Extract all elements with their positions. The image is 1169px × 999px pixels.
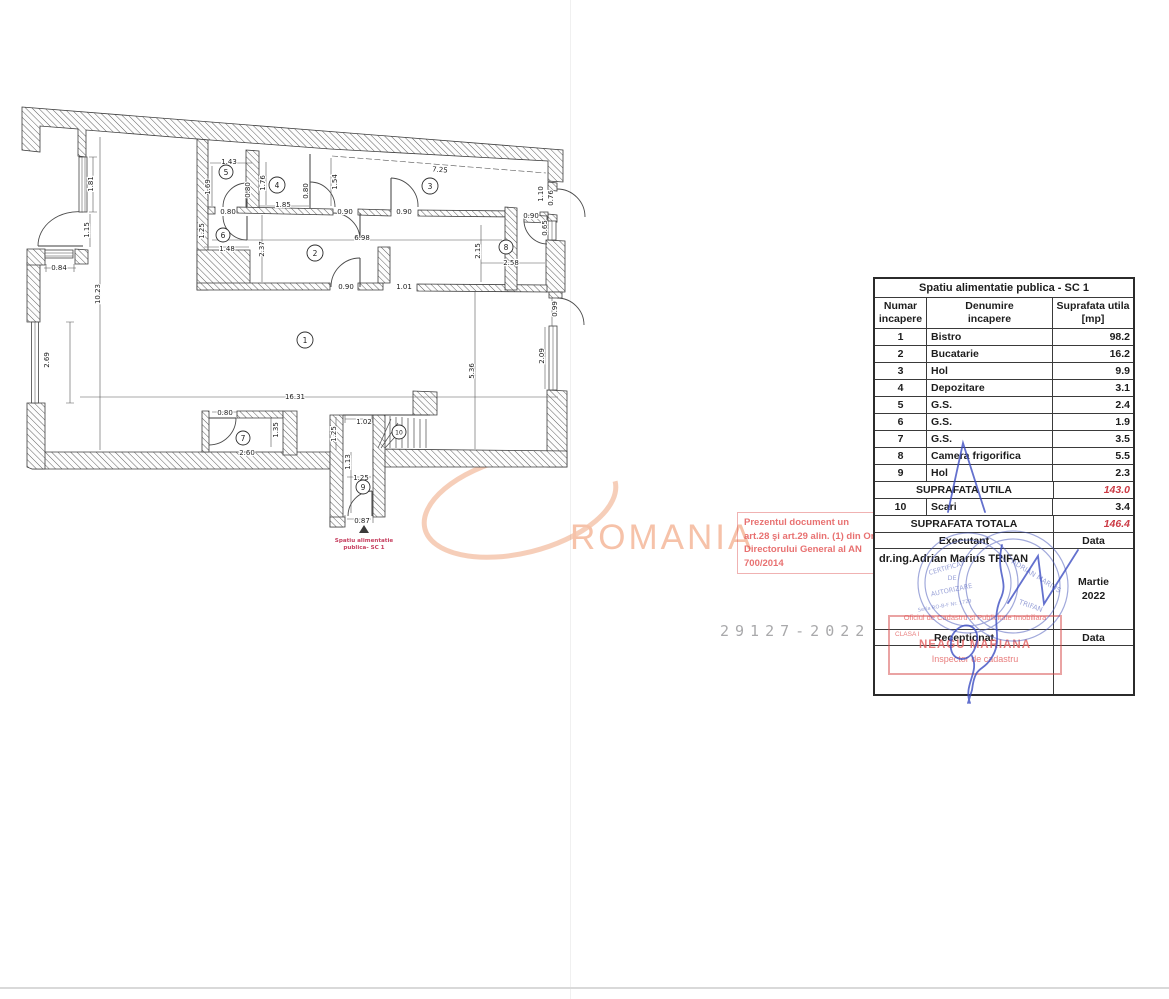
cell-nr: 3 xyxy=(875,363,927,379)
dim-label: 0.76 xyxy=(547,190,555,206)
room-number: 3 xyxy=(428,182,433,191)
header-text: Denumire xyxy=(965,300,1013,313)
table-row: 6G.S.1.9 xyxy=(875,414,1133,431)
dim-label: 0.90 xyxy=(523,212,539,220)
table-header-row: Numar incapere Denumire incapere Suprafa… xyxy=(875,298,1133,329)
room-number: 10 xyxy=(395,430,403,437)
dim-label: 1.35 xyxy=(272,422,280,438)
document-number: 29127-2022 xyxy=(720,622,870,640)
dim-label: 0.90 xyxy=(396,208,412,216)
dim-label: 2.60 xyxy=(239,449,255,457)
table-title: Spatiu alimentatie publica - SC 1 xyxy=(875,279,1133,298)
table-row: 5G.S.2.4 xyxy=(875,397,1133,414)
dim-label: 1.15 xyxy=(83,222,91,238)
dim-label: 1.85 xyxy=(275,201,291,209)
cell-nr: 4 xyxy=(875,380,927,396)
dim-label: 1.69 xyxy=(204,179,212,195)
dim-label: 0.99 xyxy=(551,301,559,317)
cell-name: Hol xyxy=(927,363,1053,379)
table-row: 2Bucatarie16.2 xyxy=(875,346,1133,363)
header-text: Numar xyxy=(884,300,917,313)
cell-name: Depozitare xyxy=(927,380,1053,396)
dim-label: 1.54 xyxy=(331,174,339,190)
dim-label: 7.25 xyxy=(432,165,448,174)
header-denumire: Denumire incapere xyxy=(927,298,1053,328)
dim-label: 2.09 xyxy=(538,348,546,364)
cell-name: G.S. xyxy=(927,397,1053,413)
dim-label: 1.81 xyxy=(87,176,95,192)
dim-label: 1.43 xyxy=(221,158,237,166)
dim-label: 0.80 xyxy=(220,208,236,216)
cell-area: 2.4 xyxy=(1053,397,1133,413)
table-row: 1Bistro98.2 xyxy=(875,329,1133,346)
room-number: 1 xyxy=(303,336,308,345)
dim-label: 1.13 xyxy=(344,454,352,470)
dim-label: 0.80 xyxy=(217,409,233,417)
cell-area: 3.1 xyxy=(1053,380,1133,396)
dim-label: 1.25 xyxy=(330,426,338,442)
room-number: 4 xyxy=(275,181,280,190)
dim-label: 0.84 xyxy=(51,264,67,272)
scanned-floorplan-page: ROMANIA xyxy=(0,0,1169,999)
cell-name: Bistro xyxy=(927,329,1053,345)
dim-label: 0.90 xyxy=(338,283,354,291)
dim-label: 1.10 xyxy=(537,186,545,202)
blue-stamp-and-signature: CERTIFICAT DE AUTORIZARE Seria RO-B-F Nr… xyxy=(855,430,1125,715)
room-number: 8 xyxy=(504,243,509,252)
cell-name: Bucatarie xyxy=(927,346,1053,362)
stamp-text: TRIFAN xyxy=(1017,598,1044,614)
dim-label: 1.02 xyxy=(356,418,372,426)
dim-label: 1.01 xyxy=(396,283,412,291)
space-label: Spatiu alimentatie publica- SC 1 xyxy=(335,525,394,551)
room-number: 7 xyxy=(241,434,246,443)
cell-nr: 1 xyxy=(875,329,927,345)
header-text: [mp] xyxy=(1082,313,1105,326)
dim-label: 6.98 xyxy=(354,234,370,242)
header-text: Suprafata utila xyxy=(1057,300,1130,313)
room-number: 9 xyxy=(361,483,366,492)
header-text: incapere xyxy=(879,313,922,326)
dim-label: 2.15 xyxy=(474,243,482,259)
window-symbols xyxy=(32,157,558,403)
header-numar: Numar incapere xyxy=(875,298,927,328)
dim-label: 0.87 xyxy=(354,517,370,525)
header-suprafata: Suprafata utila [mp] xyxy=(1053,298,1133,328)
room-number: 2 xyxy=(313,249,318,258)
floor-plan: 1.81 1.15 0.84 2.69 10.23 16.31 1.43 1.6… xyxy=(0,0,620,580)
walls xyxy=(22,107,567,527)
table-row: 4Depozitare3.1 xyxy=(875,380,1133,397)
dim-label: 2.69 xyxy=(43,352,51,368)
space-label-line2: publica- SC 1 xyxy=(343,545,384,551)
cell-nr: 5 xyxy=(875,397,927,413)
space-label-line1: Spatiu alimentatie xyxy=(335,538,394,544)
triangle-marker-icon xyxy=(359,525,369,533)
cell-nr: 2 xyxy=(875,346,927,362)
cell-nr: 6 xyxy=(875,414,927,430)
dim-label: 1.48 xyxy=(219,245,235,253)
cell-name: G.S. xyxy=(927,414,1053,430)
cell-area: 16.2 xyxy=(1053,346,1133,362)
room-number: 6 xyxy=(221,231,226,240)
dim-label: 1.76 xyxy=(259,175,267,191)
cell-area: 98.2 xyxy=(1053,329,1133,345)
dim-label: 0.80 xyxy=(244,182,252,198)
cell-area: 1.9 xyxy=(1053,414,1133,430)
dim-label: 10.23 xyxy=(94,284,102,304)
dim-label: 16.31 xyxy=(285,393,305,401)
stamp-text: DE xyxy=(947,574,956,582)
dim-label: 2.58 xyxy=(503,259,519,267)
header-text: incapere xyxy=(968,313,1011,326)
dim-label: 0.65 xyxy=(541,220,549,236)
dim-label: 5.36 xyxy=(468,363,476,379)
dim-label: 1.25 xyxy=(198,223,206,239)
room-number: 5 xyxy=(224,168,229,177)
table-row: 3Hol9.9 xyxy=(875,363,1133,380)
dim-label: 2.37 xyxy=(258,241,266,257)
dim-label: 0.80 xyxy=(302,183,310,199)
dim-label: 0.90 xyxy=(337,208,353,216)
page-bottom-edge xyxy=(0,987,1169,989)
cell-area: 9.9 xyxy=(1053,363,1133,379)
